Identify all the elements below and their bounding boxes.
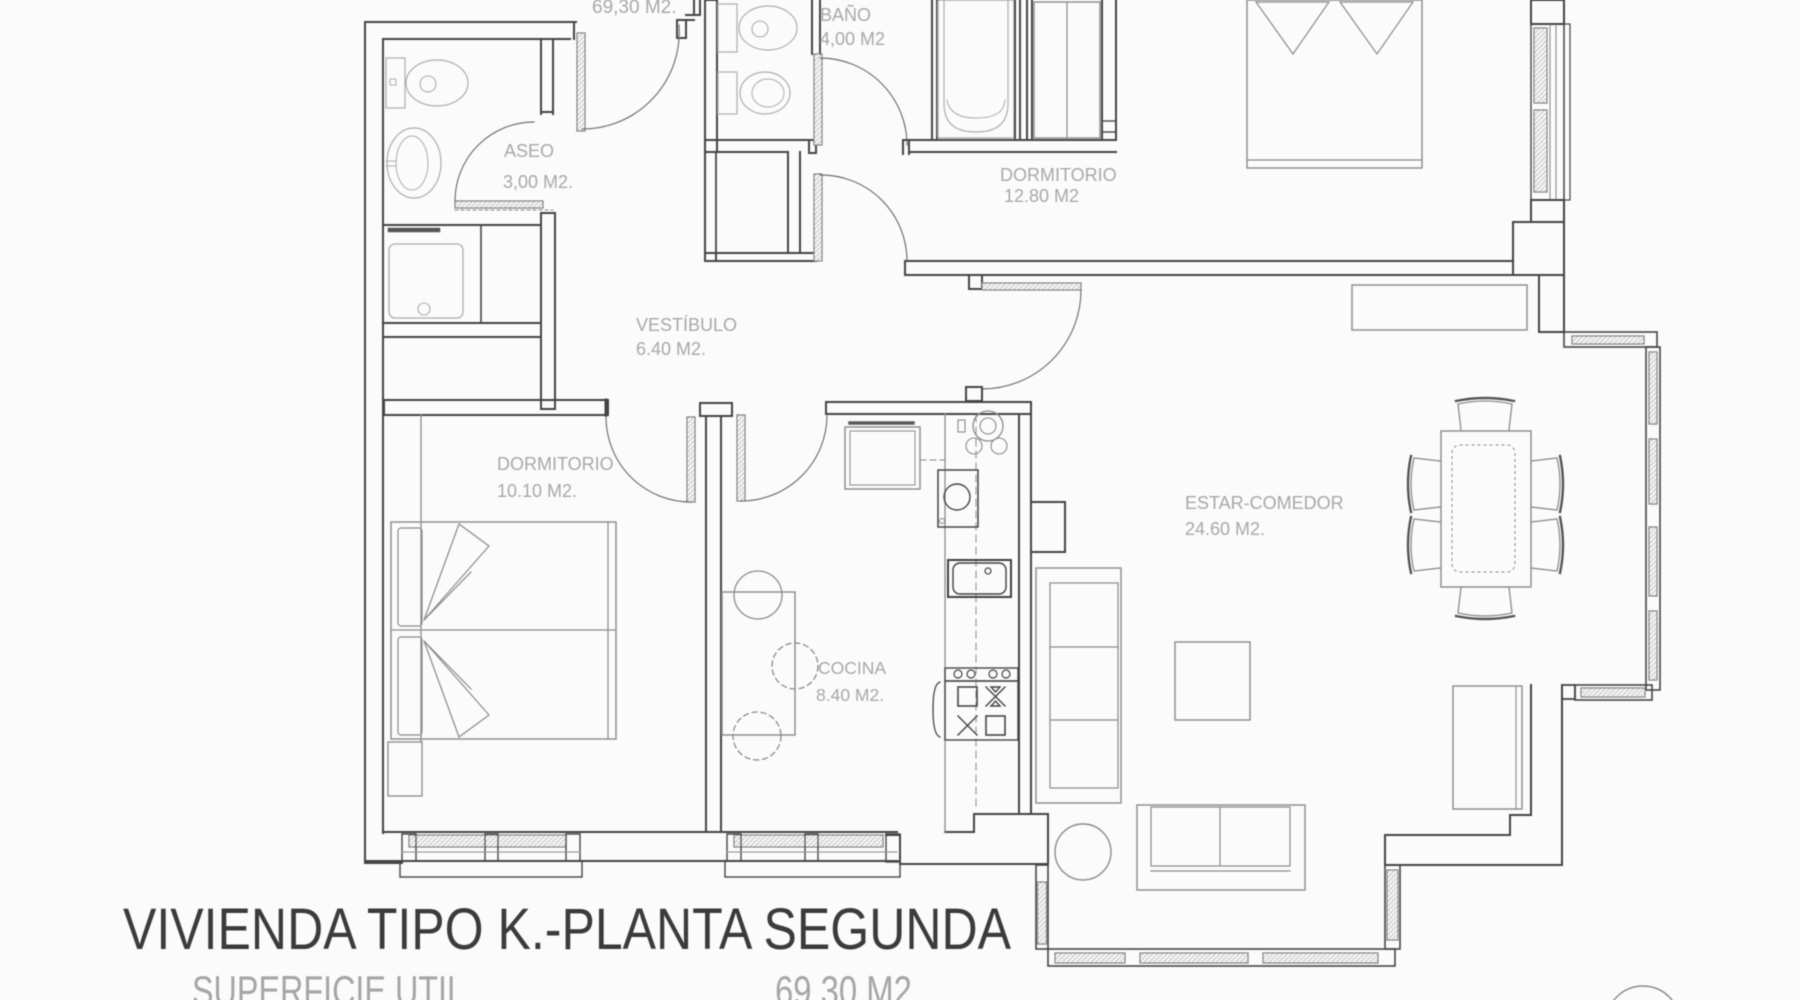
svg-text:ESTAR-COMEDOR: ESTAR-COMEDOR (1185, 493, 1344, 513)
svg-text:12.80 M2: 12.80 M2 (1004, 186, 1079, 206)
svg-text:ASEO: ASEO (504, 141, 554, 161)
svg-text:8.40 M2.: 8.40 M2. (816, 685, 884, 705)
svg-text:69,30 M2.: 69,30 M2. (592, 0, 677, 18)
svg-text:69.30 M2.: 69.30 M2. (775, 967, 921, 1000)
svg-text:6.40 M2.: 6.40 M2. (636, 339, 706, 359)
svg-text:BAÑO: BAÑO (820, 4, 871, 25)
svg-text:VESTÍBULO: VESTÍBULO (636, 315, 737, 335)
svg-text:DORMITORIO: DORMITORIO (1000, 165, 1117, 185)
svg-text:24.60 M2.: 24.60 M2. (1185, 519, 1265, 539)
svg-text:10.10 M2.: 10.10 M2. (497, 481, 577, 501)
svg-text:VIVIENDA TIPO K.-PLANTA SEGUND: VIVIENDA TIPO K.-PLANTA SEGUNDA (123, 897, 1011, 962)
svg-text:DORMITORIO: DORMITORIO (497, 454, 614, 474)
svg-text:SUPERFICIE UTIL: SUPERFICIE UTIL (192, 967, 465, 1000)
svg-text:4,00 M2: 4,00 M2 (820, 29, 885, 49)
svg-text:3,00 M2.: 3,00 M2. (503, 172, 573, 192)
svg-text:COCINA: COCINA (818, 658, 886, 678)
